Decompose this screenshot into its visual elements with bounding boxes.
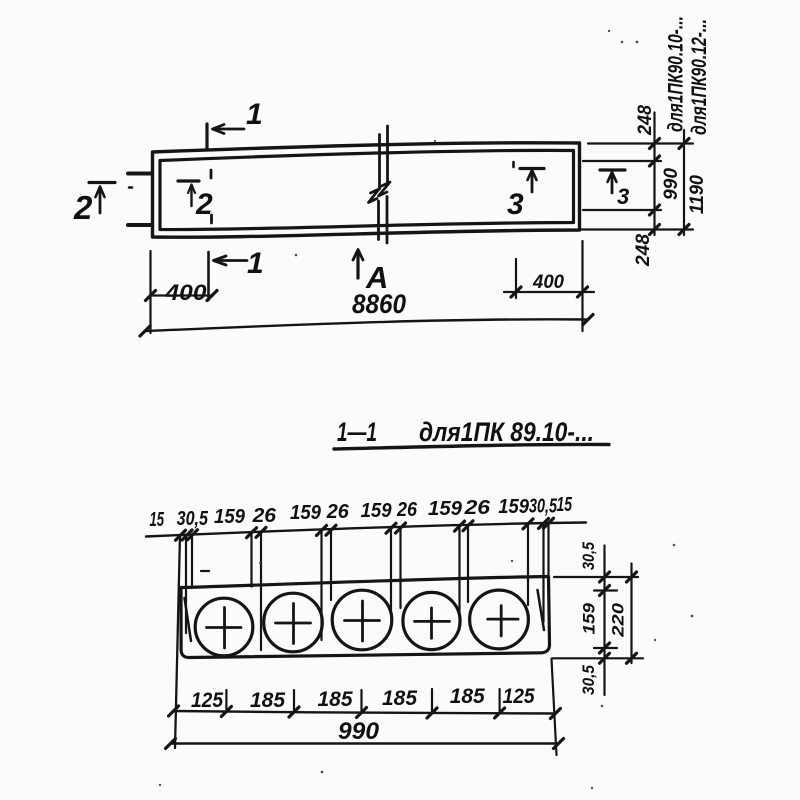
svg-text:159: 159	[428, 498, 463, 520]
svg-text:185: 185	[250, 689, 285, 712]
svg-text:990: 990	[660, 168, 682, 200]
svg-text:159: 159	[214, 506, 246, 528]
svg-text:2: 2	[73, 189, 93, 226]
svg-text:159: 159	[580, 602, 599, 634]
svg-text:для1ПК90.10-...: для1ПК90.10-...	[665, 16, 688, 132]
svg-text:для1ПК90.12-...: для1ПК90.12-...	[688, 19, 711, 135]
svg-text:185: 185	[450, 685, 485, 708]
svg-text:1—1: 1—1	[337, 417, 377, 447]
svg-text:159: 159	[290, 502, 322, 524]
svg-text:30,5: 30,5	[177, 508, 209, 530]
svg-text:990: 990	[338, 718, 380, 745]
svg-text:185: 185	[382, 687, 417, 710]
svg-text:125: 125	[191, 689, 223, 712]
svg-text:30,5: 30,5	[579, 665, 598, 695]
svg-text:26: 26	[463, 497, 491, 519]
svg-text:159: 159	[361, 500, 393, 522]
svg-text:15: 15	[557, 494, 573, 516]
svg-text:125: 125	[503, 685, 535, 708]
svg-text:1190: 1190	[686, 175, 708, 214]
svg-text:26: 26	[252, 505, 277, 527]
svg-text:185: 185	[318, 688, 353, 711]
svg-text:159: 159	[498, 496, 530, 518]
svg-text:400: 400	[164, 280, 207, 305]
svg-text:2: 2	[195, 188, 213, 221]
svg-text:26: 26	[396, 499, 418, 521]
svg-text:30,5: 30,5	[579, 542, 598, 570]
svg-text:3: 3	[507, 188, 524, 221]
svg-text:248: 248	[634, 105, 656, 136]
svg-text:248: 248	[632, 234, 654, 267]
svg-text:400: 400	[532, 272, 564, 293]
svg-text:220: 220	[609, 602, 628, 638]
svg-text:26: 26	[326, 501, 350, 523]
svg-text:1: 1	[246, 98, 263, 131]
svg-text:8860: 8860	[352, 289, 406, 319]
svg-text:для1ПК 89.10-...: для1ПК 89.10-...	[419, 417, 594, 447]
svg-text:15: 15	[150, 509, 165, 531]
svg-text:30,5: 30,5	[529, 496, 558, 518]
svg-text:3: 3	[617, 184, 629, 209]
svg-text:1: 1	[247, 247, 264, 280]
